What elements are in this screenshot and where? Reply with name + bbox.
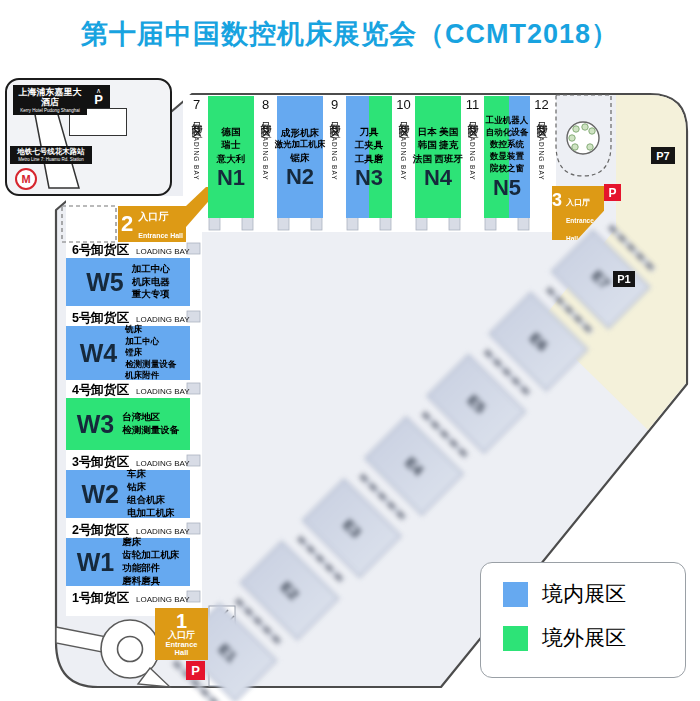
hall-line: 加工中心 bbox=[132, 263, 170, 276]
legend-label-domestic: 境内展区 bbox=[542, 580, 626, 608]
hall-N5: 工业机器人 自动化设备 数控系统 数显装置 院校之窗 N5 bbox=[484, 96, 530, 218]
hall-line: 组合机床 bbox=[127, 494, 175, 507]
hall-line: 数控系统 bbox=[490, 139, 524, 151]
exhibition-map: E1 E2 E3 E4 E5 E6 E7 第十届中国数控机床展览会（CCMT20… bbox=[0, 0, 700, 701]
page-title: 第十届中国数控机床展览会（CCMT2018） bbox=[0, 16, 700, 52]
metro-name-en: Metro Line 7: Huamu Rd. Station bbox=[13, 157, 89, 162]
hall-line: 齿轮加工机床 bbox=[122, 549, 179, 562]
loading-bay-9: 9 号卸货区 LOADING BAY bbox=[323, 97, 346, 229]
loading-bay-11: 11 号卸货区 LOADING BAY bbox=[461, 97, 484, 229]
hall-W1: W1 磨床 齿轮加工机床 功能部件 磨料磨具 bbox=[66, 538, 190, 586]
hotel-name-cn: 上海浦东嘉里大酒店 bbox=[16, 87, 84, 108]
hall-line: 加工中心 bbox=[125, 336, 176, 347]
hall-line: 电加工机床 bbox=[127, 507, 175, 520]
hall-line: 日本 美国 bbox=[418, 125, 459, 138]
hall-line: 意大利 bbox=[217, 152, 246, 165]
hall-label: E5 bbox=[464, 391, 489, 416]
hall-line: 工具磨 bbox=[355, 152, 384, 165]
hall-line: 韩国 捷克 bbox=[418, 138, 459, 151]
hall-label: N1 bbox=[217, 167, 245, 189]
hotel-metro-inset: 上海浦东嘉里大酒店 Kerry Hotel Pudong Shanghai ∧ … bbox=[5, 78, 172, 196]
hall-W5: W5 加工中心 机床电器 重大专项 bbox=[66, 258, 190, 306]
parking-P7-badge: P7 bbox=[651, 147, 675, 164]
hall-line: 锯床 bbox=[291, 151, 310, 164]
hall-label: E7 bbox=[588, 267, 613, 292]
loading-bay-12: 12 号卸货区 LOADING BAY bbox=[530, 97, 553, 229]
hall-label: N4 bbox=[424, 167, 452, 189]
hall-line: 成形机床 bbox=[281, 126, 319, 139]
hall-line: 功能部件 bbox=[122, 562, 179, 575]
parking-P1-badge: P1 bbox=[613, 271, 635, 287]
hall-label: W3 bbox=[77, 412, 115, 437]
legend-domestic: 境内展区 bbox=[503, 580, 685, 608]
hotel-label: 上海浦东嘉里大酒店 Kerry Hotel Pudong Shanghai bbox=[13, 85, 87, 115]
legend-swatch-domestic bbox=[503, 582, 528, 607]
hall-label: E6 bbox=[526, 329, 551, 354]
entrance-hall-2: 2 入口厅 Entrance Hall bbox=[118, 206, 186, 242]
legend-label-overseas: 境外展区 bbox=[542, 624, 626, 652]
hall-label: W4 bbox=[80, 341, 118, 366]
hall-line: 瑞士 bbox=[222, 138, 241, 151]
hall-line: 数显装置 bbox=[490, 151, 524, 163]
hall-label: E2 bbox=[277, 578, 302, 603]
hall-line: 车床 bbox=[127, 468, 175, 481]
hotel-name-en: Kerry Hotel Pudong Shanghai bbox=[16, 108, 84, 113]
metro-name-cn: 地铁七号线花木路站 bbox=[13, 148, 89, 157]
dashed-zone-circle bbox=[79, 216, 101, 238]
hall-W3: W3 台湾地区 检测测量设备 bbox=[66, 398, 190, 450]
hall-line: 磨料磨具 bbox=[122, 575, 179, 588]
hall-line: 台湾地区 bbox=[122, 411, 179, 424]
loading-bay-4: 4号卸货区 LOADING BAY bbox=[72, 382, 202, 399]
loading-bay-1: 1号卸货区 LOADING BAY bbox=[72, 590, 202, 607]
hall-label: N3 bbox=[355, 167, 383, 189]
loading-bay-7: 7 号卸货区 LOADING BAY bbox=[185, 97, 208, 229]
hall-N4: 日本 美国 韩国 捷克 法国 西班牙 N4 bbox=[415, 96, 461, 218]
metro-label: 地铁七号线花木路站 Metro Line 7: Huamu Rd. Statio… bbox=[10, 146, 92, 164]
hall-label: N2 bbox=[286, 166, 314, 188]
hall-label: E3 bbox=[339, 516, 364, 541]
hall-line: 激光加工机床 bbox=[275, 139, 326, 151]
hall-line: 检测测量设备 bbox=[125, 359, 176, 370]
legend: 境内展区 境外展区 bbox=[480, 562, 686, 678]
hall-W2: W2 车床 钻床 组合机床 电加工机床 bbox=[66, 470, 190, 518]
hall-line: 检测测量设备 bbox=[122, 424, 179, 437]
hall-line: 自动化设备 bbox=[486, 127, 529, 139]
hall-line: 工业机器人 bbox=[486, 115, 529, 127]
hall-line: 钻床 bbox=[127, 481, 175, 494]
hall-line: 院校之窗 bbox=[490, 163, 524, 175]
legend-swatch-overseas bbox=[503, 626, 528, 651]
parking-letter: P bbox=[94, 93, 103, 106]
hall-label: E1 bbox=[215, 640, 240, 665]
hall-line: 铣床 bbox=[125, 324, 176, 335]
hall-line: 刀具 bbox=[360, 125, 379, 138]
hall-line: 机床电器 bbox=[132, 276, 170, 289]
hall-line: 重大专项 bbox=[132, 288, 170, 301]
hotel-parking-icon: ∧ P bbox=[87, 85, 110, 108]
hall-label: E4 bbox=[401, 454, 426, 479]
hall-N3: 刀具 工夹具 工具磨 N3 bbox=[346, 96, 392, 218]
hall-line: 法国 西班牙 bbox=[413, 152, 463, 165]
legend-overseas: 境外展区 bbox=[503, 624, 685, 652]
hall-label: W2 bbox=[82, 482, 120, 507]
hall-line: 工夹具 bbox=[355, 138, 384, 151]
hall-label: N5 bbox=[493, 177, 521, 199]
hall-line: 德国 bbox=[222, 125, 241, 138]
hall-line: 磨床 bbox=[122, 536, 179, 549]
hall-label: W1 bbox=[77, 550, 115, 575]
parking-icon-entrance3: P bbox=[604, 184, 621, 201]
parking-icon-entrance1: P bbox=[186, 661, 205, 680]
hall-line: 镗床 bbox=[125, 347, 176, 358]
hall-N2: 成形机床 激光加工机床 锯床 N2 bbox=[277, 96, 323, 218]
loading-bay-10: 10 号卸货区 LOADING BAY bbox=[392, 97, 415, 229]
hall-W4: W4 铣床 加工中心 镗床 检测测量设备 机床附件 bbox=[66, 326, 190, 380]
hall-N1: 德国 瑞士 意大利 N1 bbox=[208, 96, 254, 218]
loading-bay-6: 6号卸货区 LOADING BAY bbox=[72, 242, 202, 259]
metro-logo-icon: M bbox=[15, 168, 37, 190]
hall-line: 机床附件 bbox=[125, 370, 176, 381]
hall-label: W5 bbox=[86, 270, 124, 295]
loading-bay-8: 8 号卸货区 LOADING BAY bbox=[254, 97, 277, 229]
entrance-hall-1: 1 入口厅 Entrance Hall bbox=[155, 608, 208, 660]
